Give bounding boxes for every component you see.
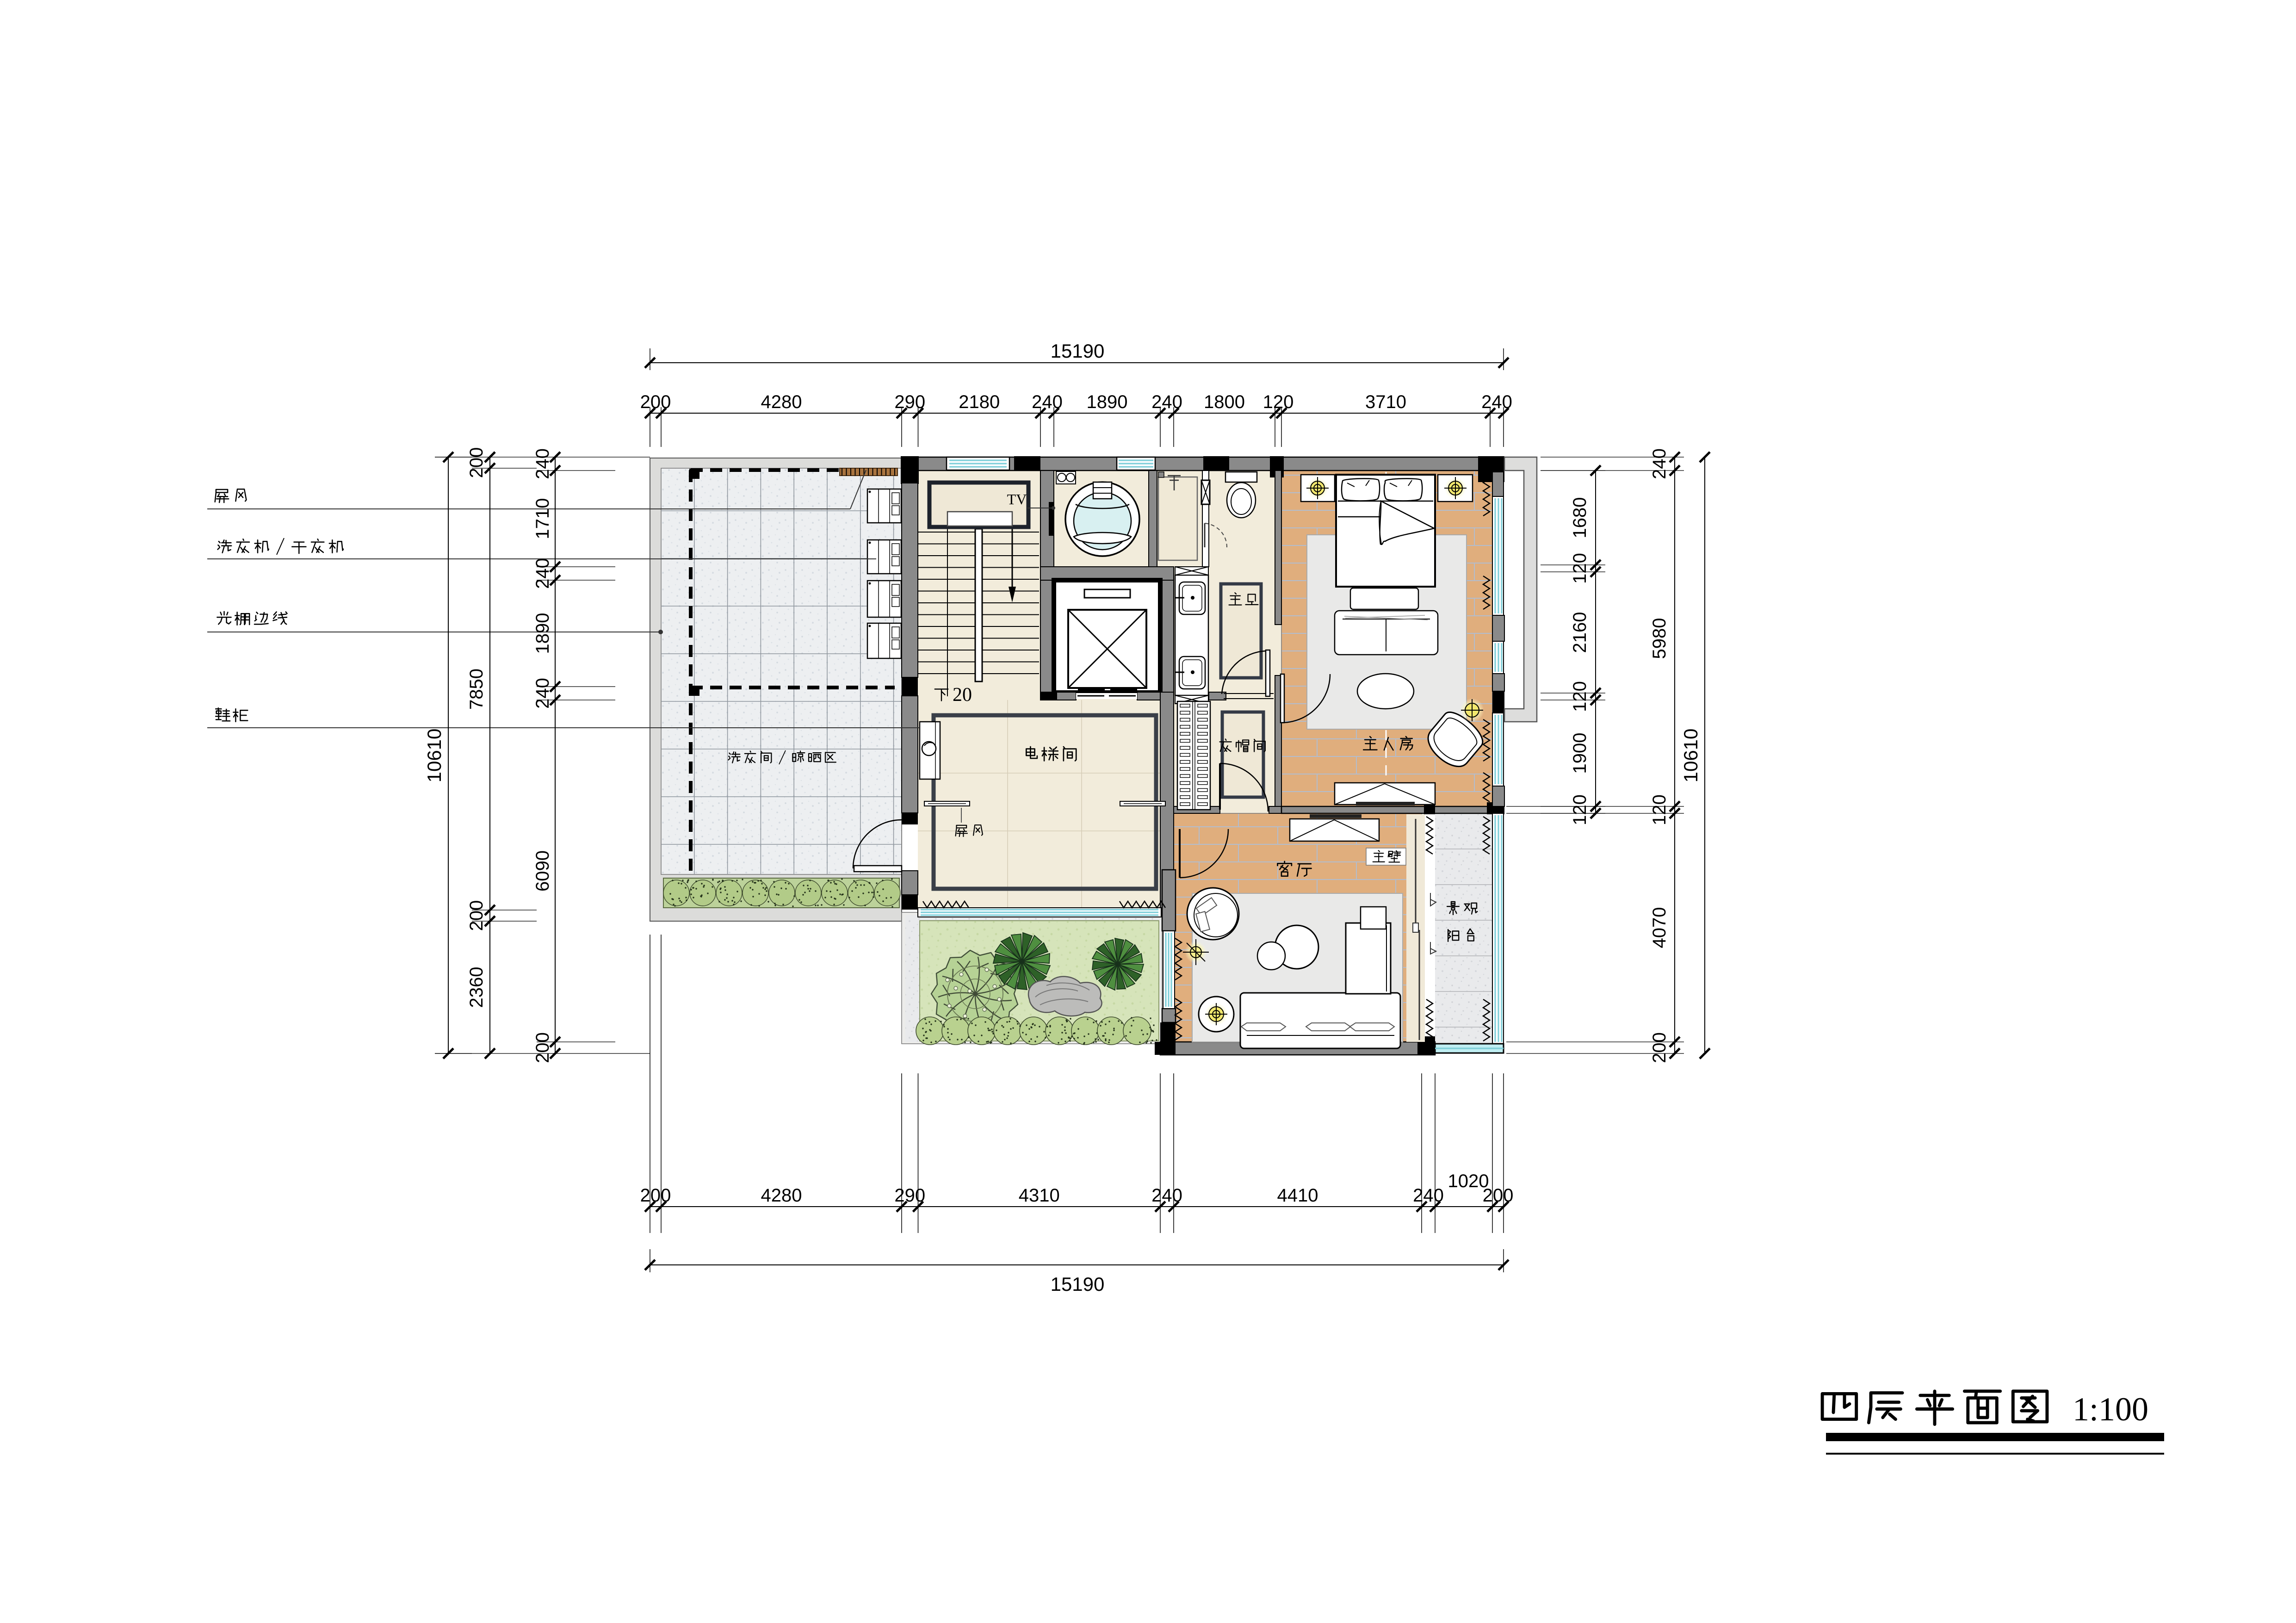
svg-text:120: 120	[1649, 794, 1670, 825]
svg-text:15190: 15190	[1051, 340, 1105, 362]
svg-text:120: 120	[1570, 794, 1590, 825]
svg-text:1680: 1680	[1570, 497, 1590, 539]
svg-text:1890: 1890	[1087, 392, 1128, 412]
svg-text:20: 20	[953, 684, 972, 706]
svg-text:200: 200	[640, 392, 671, 412]
svg-text:240: 240	[532, 678, 553, 709]
svg-text:6090: 6090	[532, 850, 553, 892]
svg-text:240: 240	[532, 558, 553, 589]
svg-text:290: 290	[894, 1185, 925, 1206]
svg-text:10610: 10610	[1680, 729, 1702, 783]
svg-text:4070: 4070	[1649, 907, 1670, 948]
svg-text:200: 200	[532, 1032, 553, 1063]
svg-text:1800: 1800	[1204, 392, 1245, 412]
svg-text:2180: 2180	[959, 392, 1000, 412]
svg-text:240: 240	[1649, 448, 1670, 479]
svg-text:120: 120	[1263, 392, 1294, 412]
svg-text:4280: 4280	[761, 1185, 802, 1206]
svg-text:7850: 7850	[466, 669, 487, 710]
svg-text:200: 200	[1483, 1185, 1514, 1206]
svg-text:240: 240	[1032, 392, 1063, 412]
svg-text:4410: 4410	[1277, 1185, 1318, 1206]
svg-text:200: 200	[466, 447, 487, 478]
svg-text:5980: 5980	[1649, 618, 1670, 659]
svg-text:120: 120	[1570, 553, 1590, 584]
svg-text:120: 120	[1570, 681, 1590, 712]
svg-text:15190: 15190	[1051, 1273, 1105, 1295]
svg-text:200: 200	[640, 1185, 671, 1206]
svg-text:240: 240	[1413, 1185, 1444, 1206]
svg-text:3710: 3710	[1365, 392, 1406, 412]
svg-text:10610: 10610	[423, 729, 445, 783]
svg-text:1:100: 1:100	[2073, 1391, 2148, 1428]
svg-text:1710: 1710	[532, 498, 553, 539]
svg-text:4310: 4310	[1019, 1185, 1060, 1206]
svg-text:240: 240	[1481, 392, 1512, 412]
svg-text:200: 200	[466, 900, 487, 931]
svg-text:290: 290	[894, 392, 925, 412]
svg-text:TV: TV	[1007, 491, 1027, 508]
svg-text:2160: 2160	[1570, 612, 1590, 653]
svg-text:240: 240	[1151, 1185, 1182, 1206]
svg-text:240: 240	[532, 448, 553, 479]
svg-text:1890: 1890	[532, 613, 553, 654]
svg-text:200: 200	[1649, 1032, 1670, 1063]
svg-text:4280: 4280	[761, 392, 802, 412]
svg-text:240: 240	[1151, 392, 1182, 412]
svg-text:2360: 2360	[466, 967, 487, 1008]
svg-text:1900: 1900	[1570, 733, 1590, 774]
